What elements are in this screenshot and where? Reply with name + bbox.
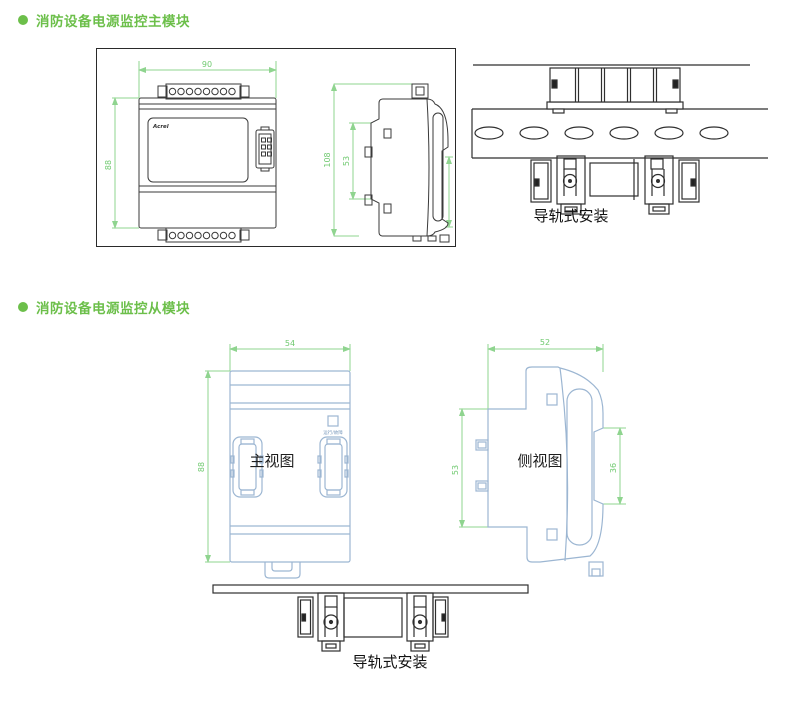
main-module-rail-mount-drawing: 导轨式安装 — [465, 55, 785, 230]
main-front-dimensions — [112, 61, 276, 228]
dim-slave-rail-slot: 36 — [609, 463, 618, 473]
dim-main-height: 88 — [104, 160, 113, 170]
bullet-icon — [18, 15, 28, 25]
brand-logo: Acrel — [152, 124, 169, 130]
section2-heading-label: 消防设备电源监控从模块 — [36, 297, 190, 317]
main-module-front-view — [139, 84, 276, 242]
main-side-dimensions — [334, 84, 453, 236]
indicator-label: 运行/故障 — [323, 429, 343, 436]
rail-mount-caption-1: 导轨式安装 — [533, 207, 608, 225]
bullet-icon — [18, 302, 28, 312]
dim-slave-height: 88 — [197, 462, 206, 472]
section2-heading: 消防设备电源监控从模块 — [18, 297, 190, 317]
main-module-drawing-box: 90 88 Acrel 108 53 — [96, 48, 456, 247]
slave-module-front-view — [230, 371, 350, 578]
dim-slave-side-width: 52 — [540, 338, 550, 347]
page: { "section1": { "heading": "消防设备电源监控主模块"… — [0, 0, 785, 702]
slave-module-side-view — [476, 367, 603, 576]
rail-mount-caption-2: 导轨式安装 — [352, 653, 427, 671]
dim-slave-body-height: 53 — [451, 465, 460, 475]
slave-rail-mount — [213, 585, 528, 651]
dim-main-width: 90 — [202, 60, 212, 69]
front-view-label: 主视图 — [249, 452, 294, 470]
main-module-side-view — [365, 84, 449, 242]
dim-main-body-height: 53 — [342, 156, 351, 166]
slave-side-dimensions — [459, 344, 626, 527]
module-top-on-rail — [547, 68, 683, 113]
dim-main-total-height: 108 — [323, 152, 332, 167]
module-rail-clips — [531, 156, 699, 214]
main-module-dimension-drawing: 90 88 Acrel 108 53 — [97, 49, 455, 246]
slave-module-dimension-drawing: 54 88 运行/故障 主视图 52 53 36 — [80, 330, 740, 685]
section1-heading-label: 消防设备电源监控主模块 — [36, 10, 190, 30]
section1-heading: 消防设备电源监控主模块 — [18, 10, 190, 30]
dim-slave-width: 54 — [285, 339, 295, 348]
side-view-label: 侧视图 — [517, 452, 562, 470]
